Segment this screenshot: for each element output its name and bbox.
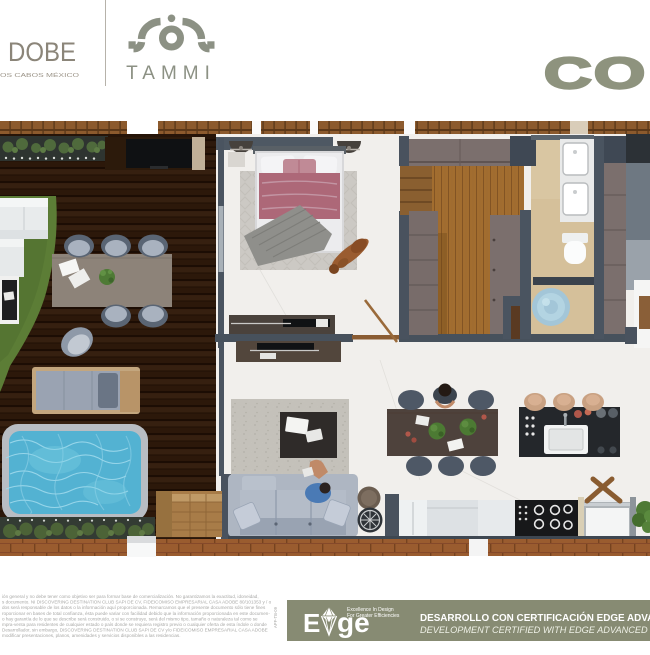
svg-text:o hay garantía de lo que se de: o hay garantía de lo que se describe ser… xyxy=(2,616,258,621)
svg-text:OS CABOS MÉXICO: OS CABOS MÉXICO xyxy=(0,72,80,79)
svg-text:dos será responsable de los da: dos será responsable de los datos o la i… xyxy=(2,605,266,610)
svg-text:APF-TB-09: APF-TB-09 xyxy=(273,606,278,628)
svg-text:DEVELOPMENT CERTIFIED WITH EDG: DEVELOPMENT CERTIFIED WITH EDGE ADVANCED… xyxy=(420,625,650,635)
svg-text:ión general y no debe tener co: ión general y no debe tener como objetiv… xyxy=(2,594,259,599)
svg-text:Desarrollador, sin embargo, DI: Desarrollador, sin embargo, DISCOVERING … xyxy=(2,628,268,633)
svg-text:DESARROLLO CON CERTIFICACIÓN E: DESARROLLO CON CERTIFICACIÓN EDGE ADVANC… xyxy=(420,612,650,624)
svg-text:DOBE: DOBE xyxy=(8,37,76,67)
svg-text:mpra-venta para residentes de: mpra-venta para residentes de cualquier … xyxy=(2,622,267,627)
svg-text:E: E xyxy=(303,608,320,638)
svg-text:CO: CO xyxy=(544,48,647,97)
svg-text:modificar presentaciones, plan: modificar presentaciones, planos, amenid… xyxy=(2,633,180,638)
svg-text:For Greater Efficiencies: For Greater Efficiencies xyxy=(347,613,400,619)
svg-text:TAMMI: TAMMI xyxy=(126,63,216,84)
svg-text:roporcionar en bases de total: roporcionar en bases de total confianza,… xyxy=(2,611,270,616)
svg-text:s documento. NI DISCOVERING DE: s documento. NI DISCOVERING DESTINATION … xyxy=(2,600,272,605)
